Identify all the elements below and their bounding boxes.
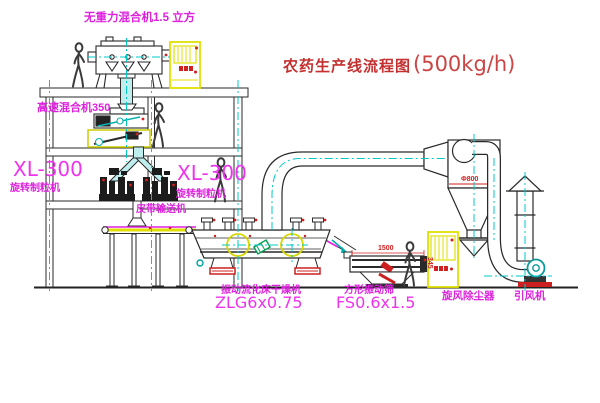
label-granulator-right-name: 旋转制粒机 <box>176 190 226 200</box>
label-belt-conveyor: 皮带输送机 <box>136 205 186 215</box>
belt-conveyor <box>102 227 196 286</box>
label-cyclone: 旋风除尘器 <box>442 291 495 302</box>
label-screen-model: FS0.6x1.5 <box>336 295 415 311</box>
square-vibrating-screen <box>344 250 432 288</box>
title-capacity: (500kg/h) <box>413 52 515 76</box>
label-gravity-free-mixer: 无重力混合机1.5 立方 <box>84 13 195 25</box>
drawing-title: 农药生产线流程图 (500kg/h) <box>283 52 515 76</box>
title-chinese: 农药生产线流程图 <box>283 55 411 76</box>
label-granulator-left-name: 旋转制粒机 <box>10 184 60 194</box>
label-dryer-model: ZLG6x0.75 <box>215 295 303 311</box>
rotary-granulator-right <box>142 168 178 201</box>
label-granulator-left-model: XL-300 <box>13 159 83 179</box>
rotary-granulator-left <box>99 168 135 201</box>
label-granulator-right-model: XL-300 <box>177 163 247 183</box>
worker-roof <box>73 43 84 86</box>
dim-cyclone-diameter: Φ800 <box>461 176 478 183</box>
dim-screen-length: 1500 <box>378 245 394 252</box>
dryer-to-screen-chute <box>326 236 356 254</box>
pesticide-line-drawing: 农药生产线流程图 (500kg/h) 无重力混合机1.5 立方 高速混合机350… <box>0 0 600 403</box>
label-fan: 引风机 <box>514 291 546 302</box>
control-cabinet-top <box>170 42 200 88</box>
fluid-bed-dryer <box>192 218 330 274</box>
exhaust-duct <box>262 152 424 230</box>
label-high-speed-mixer: 高速混合机350 <box>37 103 110 114</box>
dim-screen-side: 345 <box>426 257 433 269</box>
